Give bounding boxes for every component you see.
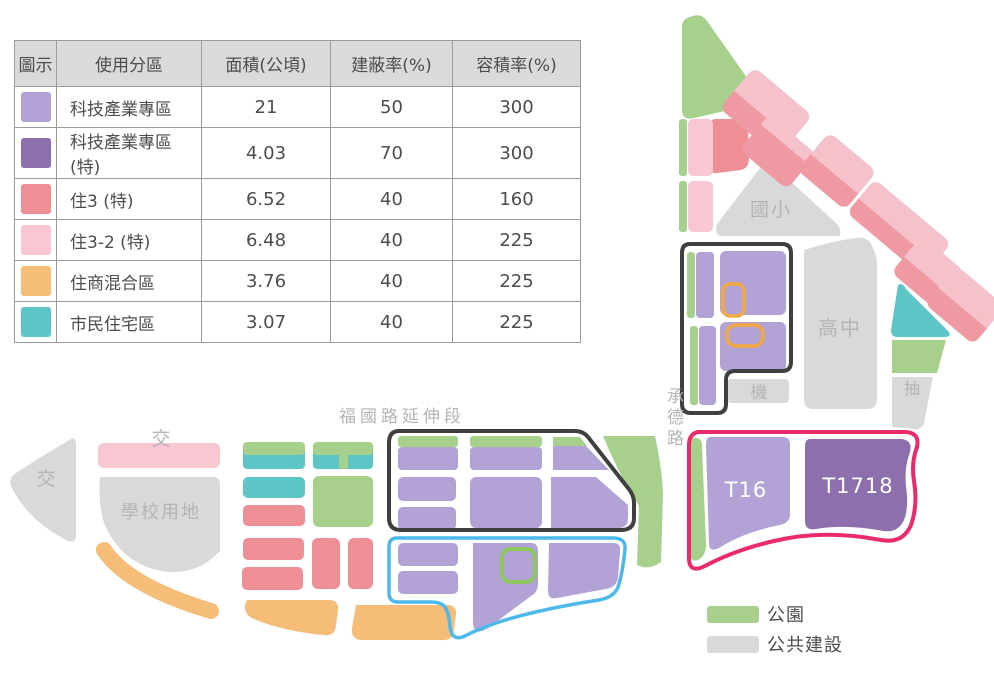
zone-block [398,543,458,566]
zoning-map: 國小 高中 機 抽 學校用地 交 交 福國路延伸段 承德路 T16 T1718 … [0,0,994,678]
zone-block [470,477,542,528]
zone-block [245,600,338,635]
machine-label: 機 [751,383,768,403]
park-strip [339,442,348,469]
zone-block [243,505,305,526]
legend-public-label: 公共建設 [767,635,843,656]
zone-block [688,119,713,176]
land-use-plan-page: 圖示 使用分區 面積(公頃) 建蔽率(%) 容積率(%) 科技產業專區 21 5… [0,0,994,678]
zone-block [688,181,713,232]
zone-block [398,571,458,594]
t1718-label: T1718 [821,474,893,498]
park-block [313,476,373,527]
legend-swatch-park [707,606,759,623]
zone-block [470,447,542,470]
zone-block [398,507,456,530]
zone-block [551,477,628,528]
park-strip [679,119,687,176]
zone-block [243,477,305,498]
zone-block [699,326,716,405]
park-strip [679,181,687,232]
elementary-school-label: 國小 [750,199,792,221]
map-legend: 公園 公共建設 [767,605,843,656]
park-strip [470,436,542,447]
park-strip [398,436,458,447]
legend-swatch-public [707,636,759,653]
park-strip [243,442,305,455]
park-strip [690,438,706,561]
high-school-label: 高中 [818,316,862,340]
zone-block [348,538,373,589]
intersection-label-top: 交 [151,428,170,450]
zone-block [243,538,304,560]
park-strip [690,326,698,405]
park-strip [892,340,946,373]
fuguo-road-label: 福國路延伸段 [339,407,465,427]
legend-park-label: 公園 [767,605,805,626]
zone-block [548,543,620,598]
zone-block [242,567,303,590]
zone-block [553,446,609,470]
zone-block [398,447,458,470]
zone-block [398,477,456,501]
pump-label: 抽 [904,379,920,398]
park-strip [687,252,695,318]
zone-block [696,252,714,318]
t16-label: T16 [724,478,768,502]
intersection-label-left: 交 [36,468,55,490]
zone-block [312,538,340,589]
zone-block [352,605,456,640]
chengde-road-label: 承德路 [663,387,684,450]
park-strip [553,437,587,446]
school-land-label: 學校用地 [121,502,201,523]
